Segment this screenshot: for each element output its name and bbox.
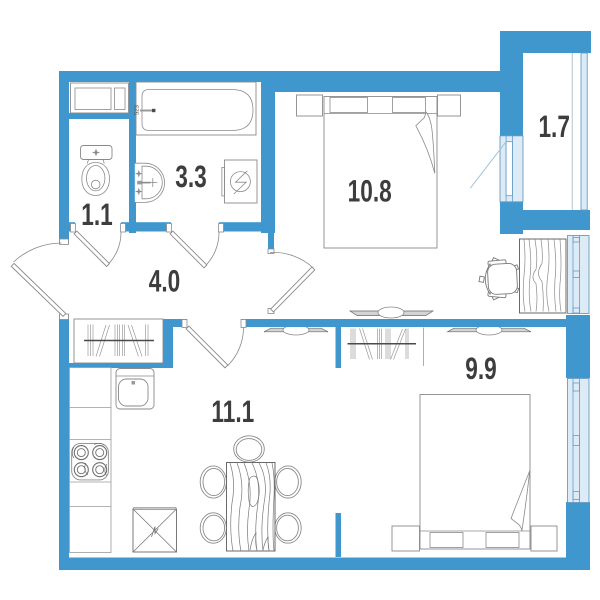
svg-text:3.3: 3.3 xyxy=(175,159,206,194)
svg-text:11.1: 11.1 xyxy=(211,394,254,429)
svg-text:523: 523 xyxy=(134,104,141,115)
svg-text:1.7: 1.7 xyxy=(538,109,569,144)
svg-text:9.9: 9.9 xyxy=(465,351,496,386)
svg-text:4.0: 4.0 xyxy=(149,264,180,299)
svg-text:1.1: 1.1 xyxy=(81,197,112,232)
svg-text:10.8: 10.8 xyxy=(348,174,392,209)
